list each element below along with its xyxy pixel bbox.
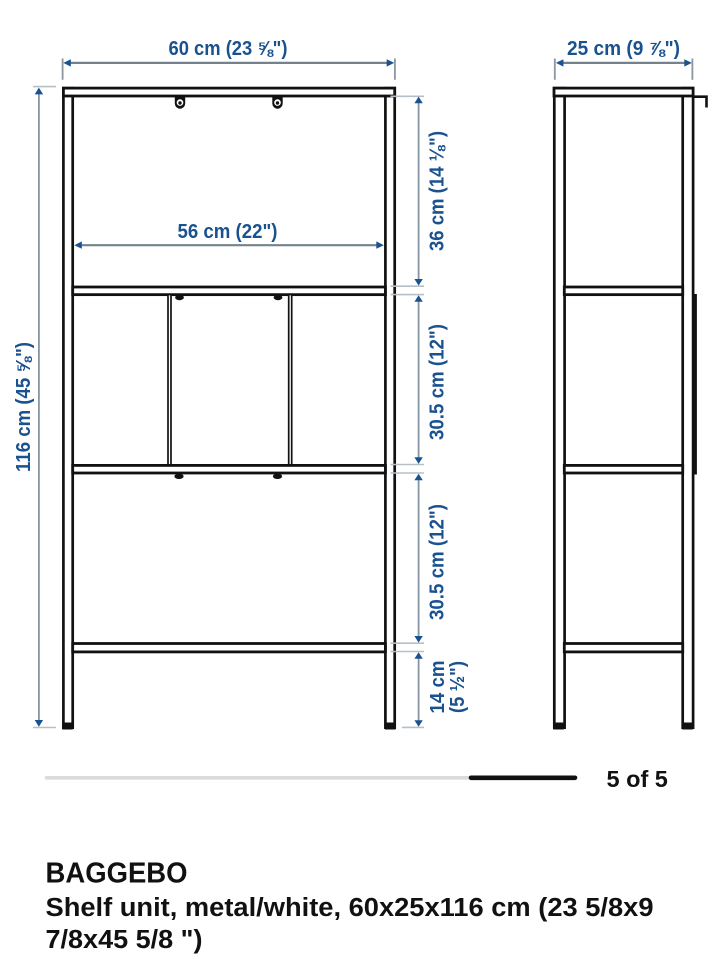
svg-text:Shelf unit, metal/white, 60x25: Shelf unit, metal/white, 60x25x116 cm (2… — [46, 894, 654, 922]
svg-text:5 of 5: 5 of 5 — [607, 766, 668, 792]
svg-text:56 cm (22"): 56 cm (22") — [178, 220, 278, 243]
svg-text:BAGGEBO: BAGGEBO — [46, 858, 188, 890]
svg-text:30.5 cm (12"): 30.5 cm (12") — [426, 504, 449, 620]
svg-text:25 cm (9 ⅞"): 25 cm (9 ⅞") — [567, 37, 680, 60]
svg-text:116 cm (45 ⅝"): 116 cm (45 ⅝") — [12, 342, 35, 472]
svg-text:(5 ½"): (5 ½") — [446, 661, 469, 713]
svg-text:7/8x45 5/8 "): 7/8x45 5/8 ") — [46, 926, 203, 954]
svg-text:36 cm (14 ⅛"): 36 cm (14 ⅛") — [426, 131, 449, 251]
svg-text:30.5 cm (12"): 30.5 cm (12") — [426, 324, 449, 440]
svg-text:60 cm (23 ⅝"): 60 cm (23 ⅝") — [169, 37, 288, 60]
